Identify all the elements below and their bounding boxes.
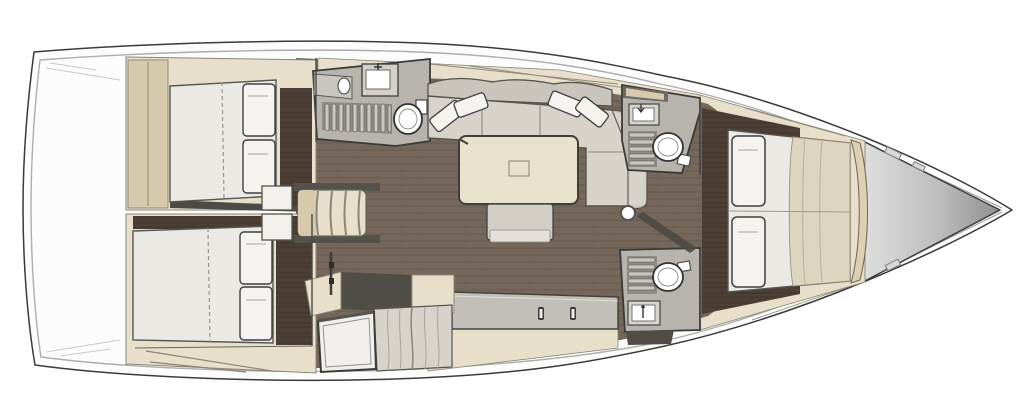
forward-head-starboard bbox=[620, 248, 700, 345]
boat-floor-plan bbox=[0, 0, 1024, 420]
sink-basin bbox=[366, 70, 390, 89]
round-sink bbox=[338, 78, 350, 94]
sideboard-bench bbox=[452, 292, 618, 329]
bow-anchor-locker bbox=[863, 141, 1002, 282]
salon-table bbox=[459, 136, 578, 204]
forward-head-port bbox=[622, 85, 700, 173]
mast-post bbox=[621, 206, 635, 220]
pillow bbox=[240, 287, 272, 340]
shower-grate bbox=[322, 102, 392, 134]
anchor-locker-triangle bbox=[863, 141, 1000, 282]
ottoman bbox=[487, 204, 553, 242]
floor-plan-page bbox=[0, 0, 1024, 420]
ottoman-front bbox=[490, 230, 550, 242]
head-floor-mat bbox=[626, 330, 674, 345]
faucet-knob bbox=[641, 305, 645, 309]
pillow bbox=[732, 136, 765, 206]
pillow bbox=[243, 140, 275, 193]
pillow bbox=[243, 84, 275, 136]
aft-head bbox=[313, 59, 430, 146]
sink-basin bbox=[633, 108, 654, 121]
pillow bbox=[732, 217, 765, 287]
galley-recess bbox=[341, 272, 411, 312]
steps-landing bbox=[298, 190, 316, 236]
